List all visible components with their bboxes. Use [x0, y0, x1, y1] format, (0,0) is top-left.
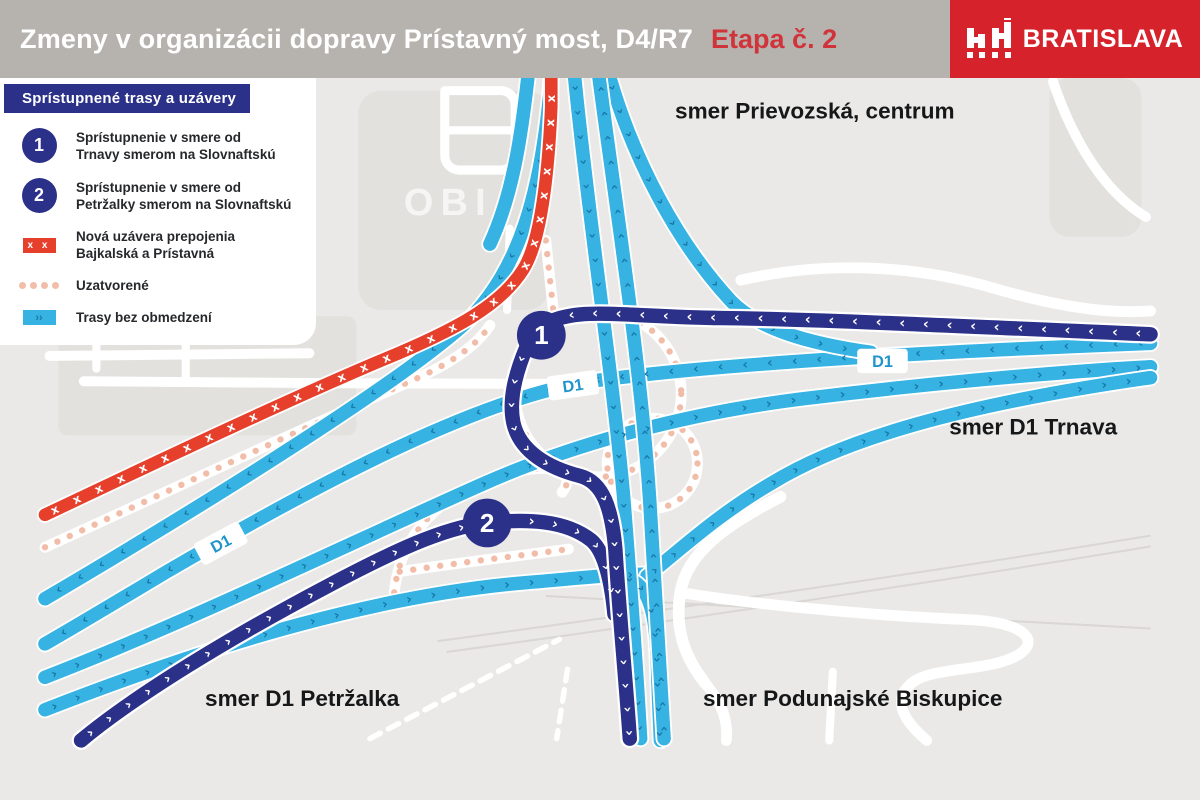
label-smer-d1-trnava: smer D1 Trnava — [949, 414, 1117, 439]
legend-item-text: Nová uzávera prepojenia Bajkalská a Prís… — [76, 228, 235, 262]
page-title: Zmeny v organizácii dopravy Prístavný mo… — [20, 24, 693, 55]
open-route-swatch-icon: ›› — [20, 310, 58, 325]
legend-item-text: Sprístupnenie v smere od Petržalky smero… — [76, 179, 291, 213]
route-2-circle-icon: 2 — [20, 178, 58, 213]
svg-text:D1: D1 — [872, 353, 893, 371]
route-2-marker: 2 — [463, 499, 512, 548]
route-1-circle-icon: 1 — [20, 128, 58, 163]
legend-panel: Sprístupnené trasy a uzávery 1 Sprístupn… — [0, 78, 316, 345]
svg-text:D1: D1 — [561, 376, 584, 397]
d1-badge-east: D1 — [857, 349, 908, 373]
bratislava-castle-icon — [967, 18, 1013, 60]
closed-dotted-swatch-icon — [20, 282, 58, 289]
legend-item-open-routes: ›› Trasy bez obmedzení — [20, 309, 316, 326]
closure-x-swatch-icon: x x — [20, 238, 58, 253]
label-smer-d1-petrzalka: smer D1 Petržalka — [205, 686, 400, 711]
legend-item-text: Uzatvorené — [76, 277, 149, 294]
svg-text:2: 2 — [480, 508, 495, 538]
label-smer-podunajske-biskupice: smer Podunajské Biskupice — [703, 686, 1003, 711]
legend-item-closed: Uzatvorené — [20, 277, 316, 294]
legend-item-text: Trasy bez obmedzení — [76, 309, 212, 326]
header-bar: Zmeny v organizácii dopravy Prístavný mo… — [0, 0, 1200, 78]
legend-item-route-2: 2 Sprístupnenie v smere od Petržalky sme… — [20, 178, 316, 213]
legend-item-route-1: 1 Sprístupnenie v smere od Trnavy smerom… — [20, 128, 316, 163]
label-smer-prievozska: smer Prievozská, centrum — [675, 99, 954, 124]
stage-label: Etapa č. 2 — [711, 24, 837, 55]
svg-text:1: 1 — [534, 320, 549, 350]
bratislava-logo: BRATISLAVA — [950, 0, 1200, 78]
legend-item-closure: x x Nová uzávera prepojenia Bajkalská a … — [20, 228, 316, 262]
route-1-marker: 1 — [517, 311, 566, 360]
logo-text: BRATISLAVA — [1023, 25, 1184, 54]
obi-store-label: OBI — [404, 182, 493, 224]
legend-item-text: Sprístupnenie v smere od Trnavy smerom n… — [76, 129, 276, 163]
legend-title: Sprístupnené trasy a uzávery — [4, 84, 250, 113]
